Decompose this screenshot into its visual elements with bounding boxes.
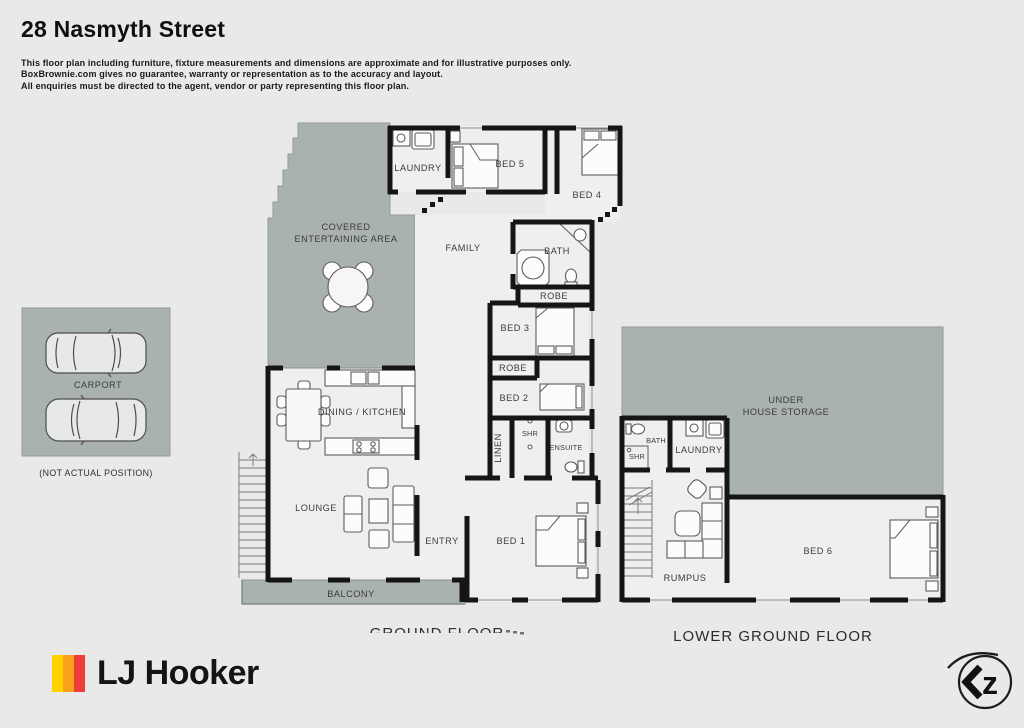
label-robe-upper: ROBE bbox=[540, 291, 568, 301]
car-icon-bottom bbox=[46, 395, 146, 445]
kz-chevron-icon bbox=[966, 667, 980, 697]
label-covered-1: COVERED bbox=[322, 222, 371, 232]
carport-detail: CARPORT (NOT ACTUAL POSITION) bbox=[22, 308, 170, 478]
agency-name: LJ Hooker bbox=[97, 654, 259, 693]
rumpus-armchair-icon bbox=[675, 511, 700, 536]
carport-note: (NOT ACTUAL POSITION) bbox=[39, 468, 153, 478]
outdoor-table-icon bbox=[323, 262, 373, 312]
label-storage-1: UNDER bbox=[768, 395, 803, 405]
bed2-icon bbox=[540, 384, 584, 410]
label-shr-lg: SHR bbox=[629, 452, 645, 461]
bath-basin-icon bbox=[574, 229, 586, 241]
label-bed4: BED 4 bbox=[572, 190, 601, 200]
bed3-icon bbox=[536, 308, 574, 356]
label-laundry-lg: LAUNDRY bbox=[675, 445, 722, 455]
label-bed3: BED 3 bbox=[500, 323, 529, 333]
label-bath-lg: BATH bbox=[646, 436, 666, 445]
floor-plan-canvas: COVERED ENTERTAINING AREA LAUNDRY BED 5 … bbox=[0, 0, 1024, 728]
kz-letter: z bbox=[982, 665, 998, 701]
floor-plan-page: { "colors": { "background": "#e9e9e7", "… bbox=[0, 0, 1024, 728]
ensuite-toilet-icon bbox=[565, 461, 584, 473]
lg-toilet-icon bbox=[626, 424, 645, 434]
label-bed1: BED 1 bbox=[496, 536, 525, 546]
label-carport: CARPORT bbox=[74, 380, 122, 390]
lg-laundry-tub-icon bbox=[706, 420, 724, 438]
agency-logo: LJ Hooker bbox=[52, 654, 259, 693]
label-balcony: BALCONY bbox=[327, 589, 374, 599]
washing-machine-icon bbox=[412, 130, 434, 149]
label-family: FAMILY bbox=[446, 243, 481, 253]
lg-laundry-sink-icon bbox=[686, 420, 703, 436]
stairs-icon bbox=[239, 452, 267, 578]
label-shr-gf: SHR bbox=[522, 429, 538, 438]
label-dining-kitchen: DINING / KITCHEN bbox=[318, 407, 406, 417]
label-bed5: BED 5 bbox=[495, 159, 524, 169]
label-bed6: BED 6 bbox=[803, 546, 832, 556]
lower-ground-floor-title: LOWER GROUND FLOOR bbox=[673, 628, 873, 645]
label-ensuite: ENSUITE bbox=[549, 443, 582, 452]
laundry-sink-icon bbox=[393, 130, 410, 146]
label-robe-lower: ROBE bbox=[499, 363, 527, 373]
ground-floor-plan: COVERED ENTERTAINING AREA LAUNDRY BED 5 … bbox=[239, 123, 622, 647]
label-rumpus: RUMPUS bbox=[664, 573, 707, 583]
bed6-icon bbox=[890, 507, 938, 591]
title-fade-artifact bbox=[358, 633, 526, 647]
rumpus-side-table-icon bbox=[710, 487, 722, 499]
label-bath-gf: BATH bbox=[544, 246, 570, 256]
kitchen-sink-icon bbox=[351, 372, 379, 384]
bed4-icon bbox=[582, 129, 618, 175]
car-icon-top bbox=[46, 329, 146, 377]
stove-icon bbox=[353, 440, 379, 453]
label-linen: LINEN bbox=[493, 433, 503, 463]
lower-ground-floor-plan: UNDER HOUSE STORAGE BATH SHR LAUNDRY RUM… bbox=[622, 327, 943, 645]
label-bed2: BED 2 bbox=[499, 393, 528, 403]
label-lounge: LOUNGE bbox=[295, 503, 337, 513]
bath-toilet-icon bbox=[565, 269, 577, 286]
label-entry: ENTRY bbox=[425, 536, 458, 546]
lj-hooker-stripes-icon bbox=[52, 655, 85, 692]
ensuite-basin-icon bbox=[556, 420, 572, 432]
label-covered-2: ENTERTAINING AREA bbox=[294, 234, 397, 244]
label-laundry-gf: LAUNDRY bbox=[394, 163, 441, 173]
label-storage-2: HOUSE STORAGE bbox=[743, 407, 829, 417]
kz-logo: z bbox=[936, 646, 1020, 726]
